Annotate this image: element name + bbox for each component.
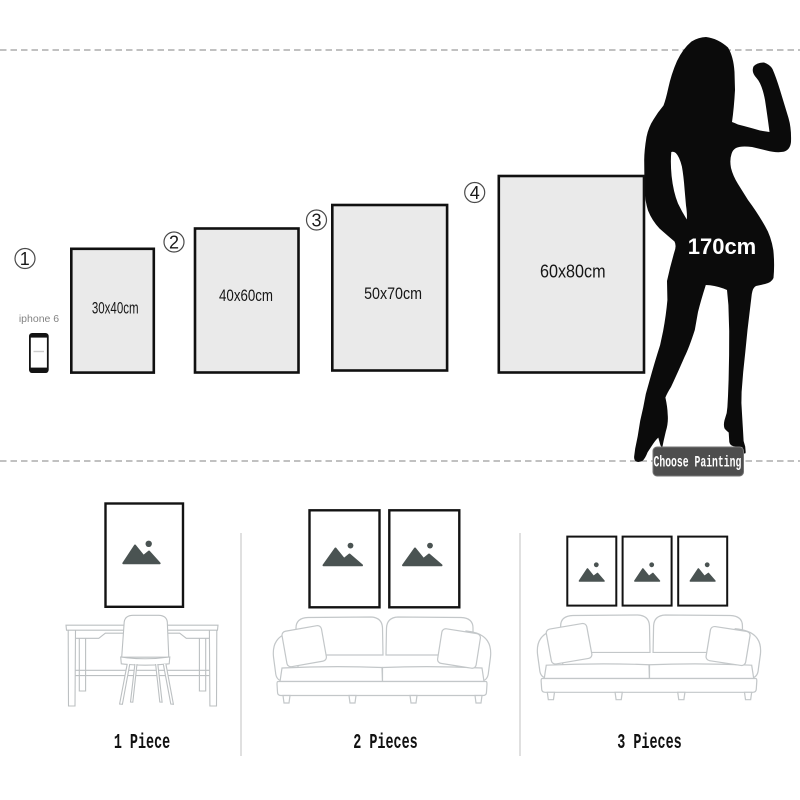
svg-text:Choose Painting: Choose Painting — [653, 453, 741, 471]
svg-text:3 Pieces: 3 Pieces — [617, 731, 681, 755]
svg-text:2 Pieces: 2 Pieces — [353, 731, 417, 755]
svg-text:30x40cm: 30x40cm — [92, 299, 139, 318]
svg-text:2: 2 — [169, 233, 179, 253]
svg-text:4: 4 — [470, 183, 480, 203]
svg-text:iphone 6: iphone 6 — [19, 313, 59, 325]
svg-text:50x70cm: 50x70cm — [364, 285, 422, 303]
svg-text:1 Piece: 1 Piece — [114, 731, 170, 755]
svg-text:1: 1 — [20, 249, 30, 269]
svg-text:3: 3 — [311, 211, 321, 231]
svg-text:60x80cm: 60x80cm — [540, 260, 606, 281]
svg-text:40x60cm: 40x60cm — [219, 287, 273, 306]
svg-text:170cm: 170cm — [688, 234, 757, 259]
